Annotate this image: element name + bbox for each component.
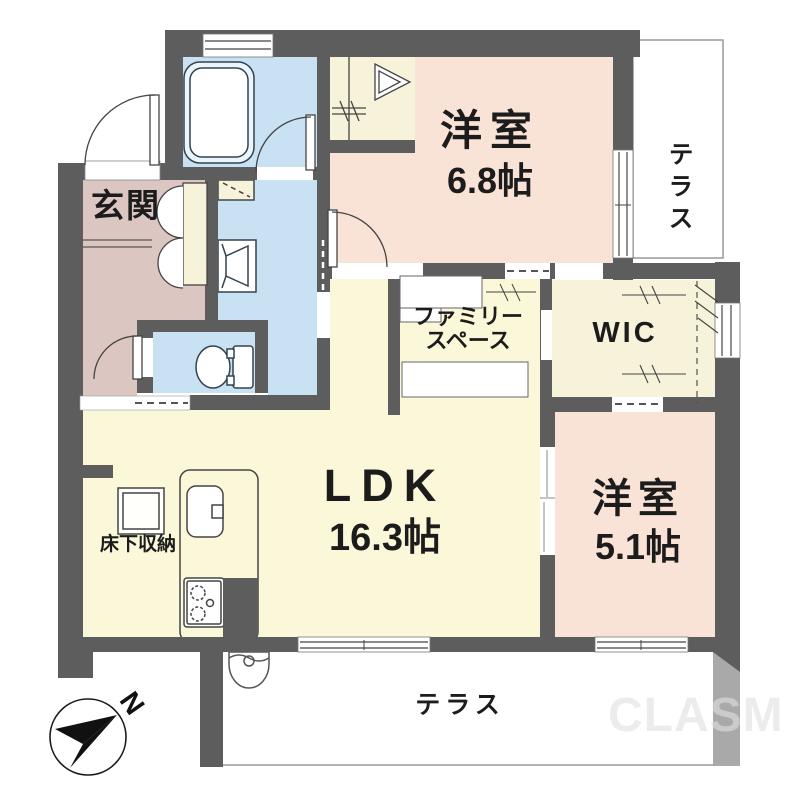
label-room68-name: 洋室 bbox=[400, 108, 580, 153]
underfloor-storage-hatch bbox=[118, 488, 164, 534]
compass: N bbox=[50, 686, 151, 775]
label-family-space: ファミリー スペース bbox=[392, 305, 544, 353]
washroom-corridor-opening bbox=[317, 292, 330, 338]
kitchen-stove bbox=[184, 578, 224, 627]
label-room51-name: 洋室 bbox=[556, 478, 720, 521]
washbasin bbox=[218, 240, 256, 292]
washroom-floor-lower bbox=[268, 320, 317, 395]
room51-floor bbox=[555, 412, 715, 637]
wic-entry-opening bbox=[555, 263, 603, 279]
corridor-floor bbox=[330, 278, 388, 413]
label-room51-size: 5.1帖 bbox=[556, 528, 720, 567]
label-ldk-size: 16.3帖 bbox=[290, 518, 480, 559]
entrance-floor-lower bbox=[83, 320, 137, 397]
label-entrance: 玄関 bbox=[84, 188, 168, 224]
label-terrace-bottom: テラス bbox=[400, 692, 520, 719]
label-room68-size: 6.8帖 bbox=[400, 162, 580, 201]
kitchen-sink bbox=[187, 486, 223, 537]
washer-box bbox=[218, 180, 254, 200]
label-terrace-right: テラス bbox=[660, 104, 692, 274]
ldk-window bbox=[298, 637, 430, 652]
wic-window bbox=[715, 303, 740, 358]
room51-window bbox=[595, 637, 688, 652]
watermark: CLASM bbox=[608, 690, 768, 742]
bathtub bbox=[184, 62, 254, 163]
toilet bbox=[196, 346, 253, 388]
label-underfloor-storage: 床下収納 bbox=[92, 535, 184, 556]
label-family-line2: スペース bbox=[392, 329, 544, 353]
label-family-line1: ファミリー bbox=[392, 305, 544, 329]
label-ldk-name: LDK bbox=[290, 462, 480, 511]
bathroom-door-opening bbox=[257, 167, 313, 180]
label-wic: WIC bbox=[560, 318, 690, 349]
bathroom-window bbox=[203, 34, 273, 57]
entrance-doorway bbox=[85, 161, 160, 180]
floorplan-canvas: N 玄関 洋室 6.8帖 テラス ファミリー スペース WIC LDK 16.3… bbox=[0, 0, 800, 800]
entrance-door bbox=[85, 95, 159, 165]
room68-window bbox=[613, 150, 633, 258]
